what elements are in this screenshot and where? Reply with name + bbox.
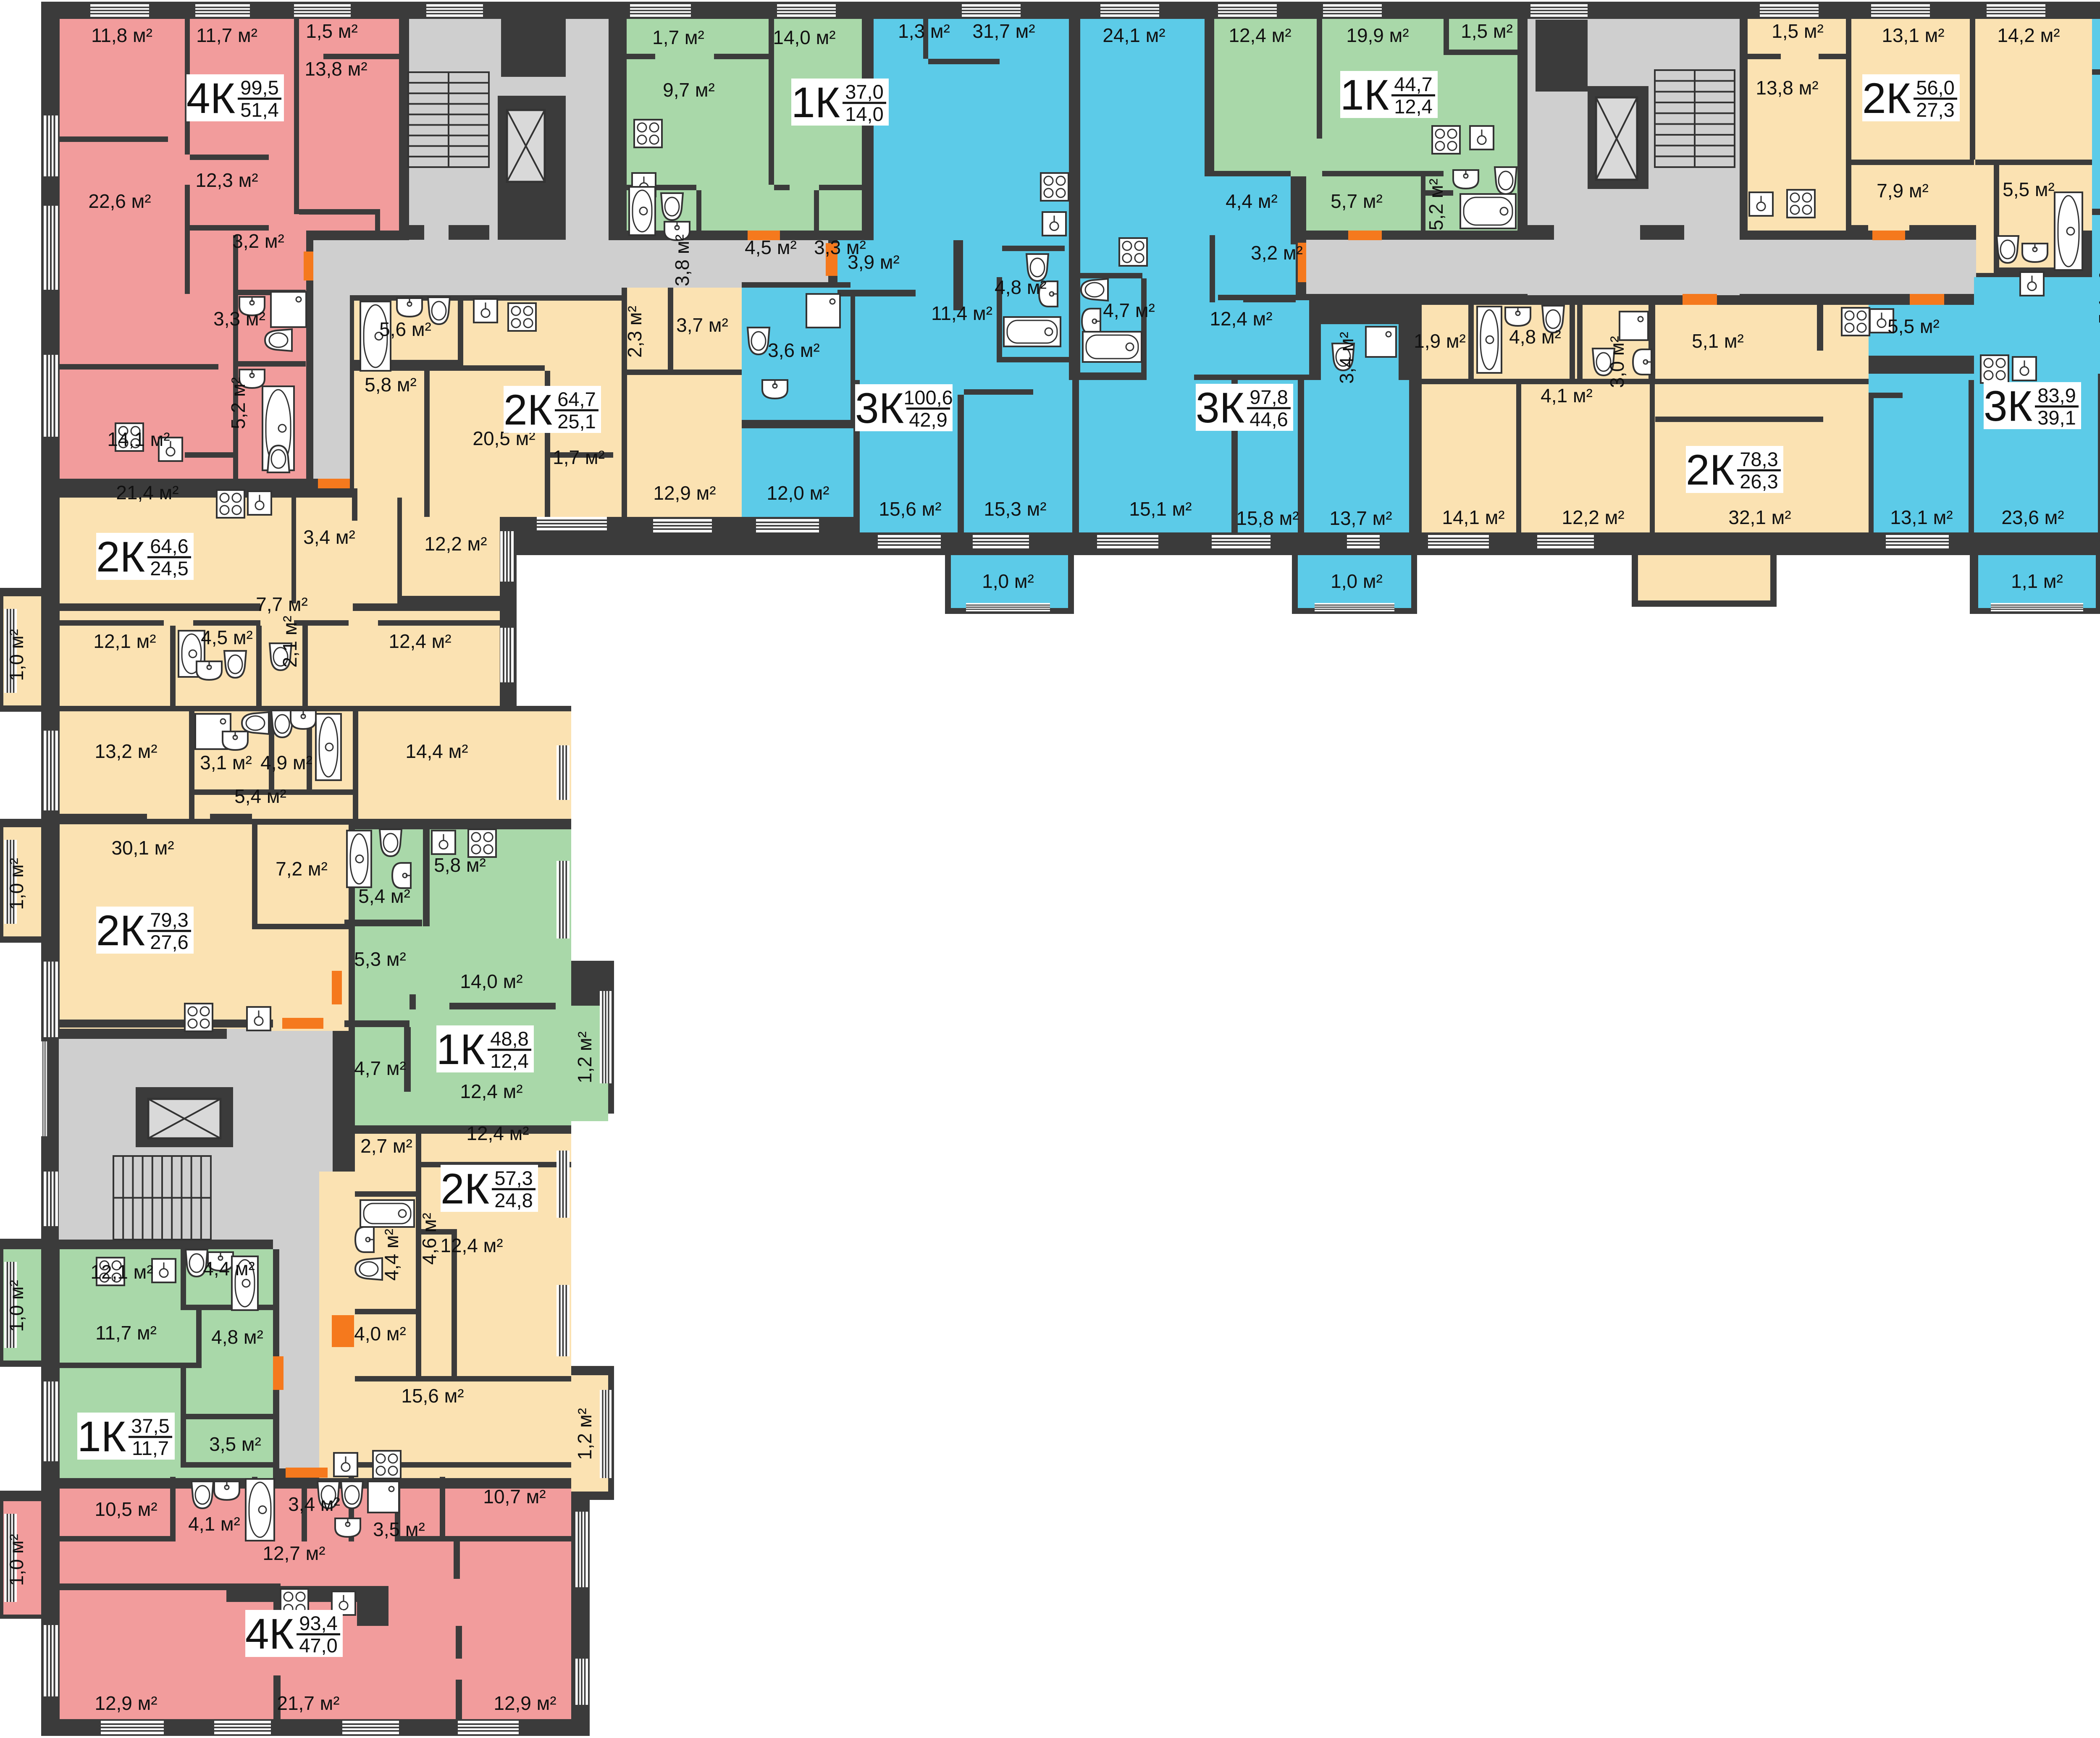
- svg-text:64,6: 64,6: [150, 535, 188, 557]
- svg-text:12,4 м²: 12,4 м²: [388, 630, 451, 652]
- svg-text:3,7 м²: 3,7 м²: [676, 314, 728, 336]
- svg-text:12,4 м²: 12,4 м²: [460, 1080, 522, 1102]
- svg-text:3К: 3К: [1196, 384, 1244, 432]
- svg-text:1,9 м²: 1,9 м²: [1414, 330, 1466, 352]
- svg-text:1,0 м²: 1,0 м²: [5, 1534, 27, 1586]
- svg-text:2К: 2К: [96, 907, 145, 954]
- svg-text:3,8 м²: 3,8 м²: [671, 234, 693, 286]
- svg-text:14,1 м²: 14,1 м²: [1442, 506, 1504, 528]
- svg-text:3,4 м²: 3,4 м²: [1336, 332, 1357, 384]
- svg-text:1,7 м²: 1,7 м²: [553, 446, 605, 468]
- svg-text:5,4 м²: 5,4 м²: [234, 785, 286, 807]
- svg-text:14,1 м²: 14,1 м²: [107, 428, 170, 450]
- svg-text:1,0 м²: 1,0 м²: [5, 1280, 27, 1332]
- svg-text:5,8 м²: 5,8 м²: [365, 374, 417, 396]
- svg-text:1,5 м²: 1,5 м²: [1461, 20, 1513, 42]
- svg-text:11,7 м²: 11,7 м²: [196, 24, 257, 46]
- svg-text:99,5: 99,5: [240, 76, 278, 99]
- svg-text:4К: 4К: [186, 74, 235, 122]
- svg-text:37,0: 37,0: [845, 81, 883, 103]
- svg-text:2К: 2К: [1686, 446, 1735, 494]
- svg-text:3,2 м²: 3,2 м²: [232, 230, 284, 252]
- svg-text:3,4 м²: 3,4 м²: [303, 526, 355, 548]
- svg-text:27,3: 27,3: [1916, 99, 1954, 121]
- svg-text:4К: 4К: [245, 1610, 294, 1658]
- svg-text:4,7 м²: 4,7 м²: [1103, 299, 1155, 321]
- svg-text:79,3: 79,3: [150, 909, 188, 931]
- svg-text:24,1 м²: 24,1 м²: [1102, 24, 1165, 46]
- svg-text:4,1 м²: 4,1 м²: [188, 1513, 240, 1535]
- svg-text:5,6 м²: 5,6 м²: [379, 318, 431, 340]
- svg-text:15,8 м²: 15,8 м²: [1236, 507, 1299, 529]
- svg-text:15,6 м²: 15,6 м²: [879, 498, 941, 520]
- svg-text:12,1 м²: 12,1 м²: [93, 630, 156, 652]
- svg-text:12,4 м²: 12,4 м²: [1210, 308, 1272, 330]
- svg-text:2,3 м²: 2,3 м²: [624, 306, 646, 358]
- svg-text:12,0 м²: 12,0 м²: [766, 482, 829, 504]
- svg-text:4,8 м²: 4,8 м²: [1509, 326, 1561, 348]
- svg-text:12,1 м²: 12,1 м²: [90, 1261, 153, 1283]
- svg-text:93,4: 93,4: [299, 1612, 337, 1634]
- svg-text:1К: 1К: [1340, 71, 1389, 119]
- svg-text:12,7 м²: 12,7 м²: [262, 1542, 325, 1564]
- svg-text:11,7 м²: 11,7 м²: [95, 1322, 157, 1344]
- svg-text:3,3 м²: 3,3 м²: [213, 308, 265, 330]
- svg-text:2К: 2К: [96, 533, 145, 581]
- svg-text:7,7 м²: 7,7 м²: [256, 593, 308, 615]
- svg-text:5,2 м²: 5,2 м²: [1425, 178, 1447, 231]
- svg-text:1,0 м²: 1,0 м²: [5, 629, 27, 681]
- svg-text:5,4 м²: 5,4 м²: [358, 885, 410, 907]
- svg-text:12,4: 12,4: [490, 1050, 528, 1072]
- svg-text:64,7: 64,7: [557, 388, 596, 410]
- svg-text:5,7 м²: 5,7 м²: [1331, 190, 1383, 212]
- svg-text:4,8 м²: 4,8 м²: [211, 1326, 263, 1348]
- svg-text:12,9 м²: 12,9 м²: [653, 482, 716, 504]
- svg-text:5,3 м²: 5,3 м²: [354, 948, 406, 970]
- svg-text:2К: 2К: [1862, 74, 1911, 122]
- svg-text:7,2 м²: 7,2 м²: [276, 858, 328, 880]
- svg-text:32,1 м²: 32,1 м²: [1728, 506, 1791, 528]
- svg-text:22,6 м²: 22,6 м²: [88, 190, 151, 212]
- svg-text:27,6: 27,6: [150, 931, 188, 953]
- svg-text:2К: 2К: [504, 386, 552, 434]
- svg-text:3,5 м²: 3,5 м²: [209, 1433, 261, 1455]
- svg-text:10,7 м²: 10,7 м²: [483, 1486, 546, 1507]
- svg-text:12,9 м²: 12,9 м²: [94, 1692, 157, 1714]
- svg-text:21,7 м²: 21,7 м²: [277, 1692, 339, 1714]
- svg-text:4,6 м²: 4,6 м²: [418, 1213, 440, 1265]
- svg-text:14,0: 14,0: [845, 103, 883, 125]
- svg-text:9,7 м²: 9,7 м²: [663, 79, 715, 101]
- svg-text:12,4 м²: 12,4 м²: [466, 1122, 529, 1144]
- svg-text:1,3 м²: 1,3 м²: [898, 20, 950, 42]
- svg-text:31,7 м²: 31,7 м²: [972, 20, 1035, 42]
- svg-text:1К: 1К: [791, 79, 840, 126]
- svg-text:3К: 3К: [1984, 382, 2032, 430]
- svg-text:14,2 м²: 14,2 м²: [1997, 24, 2060, 46]
- svg-text:24,5: 24,5: [150, 557, 188, 579]
- svg-text:3К: 3К: [855, 384, 904, 432]
- svg-text:39,1: 39,1: [2037, 406, 2076, 429]
- svg-text:47,0: 47,0: [299, 1634, 337, 1657]
- svg-text:51,4: 51,4: [240, 99, 278, 121]
- svg-text:5,1 м²: 5,1 м²: [2095, 272, 2100, 324]
- svg-text:3,4 м²: 3,4 м²: [288, 1493, 340, 1515]
- svg-text:100,6: 100,6: [903, 386, 953, 409]
- svg-text:14,0 м²: 14,0 м²: [773, 26, 835, 48]
- svg-text:5,5 м²: 5,5 м²: [1887, 315, 1940, 337]
- svg-text:4,5 м²: 4,5 м²: [745, 236, 797, 258]
- svg-text:30,1 м²: 30,1 м²: [111, 837, 174, 859]
- svg-text:1,1 м²: 1,1 м²: [2011, 570, 2063, 592]
- svg-text:1К: 1К: [77, 1413, 126, 1460]
- svg-text:48,8: 48,8: [490, 1028, 528, 1050]
- svg-text:13,1 м²: 13,1 м²: [1890, 506, 1953, 528]
- svg-text:44,6: 44,6: [1249, 408, 1288, 430]
- svg-text:19,9 м²: 19,9 м²: [1346, 24, 1409, 46]
- svg-text:4,5 м²: 4,5 м²: [201, 627, 253, 648]
- svg-text:15,1 м²: 15,1 м²: [1129, 498, 1192, 520]
- svg-text:3,0 м²: 3,0 м²: [1606, 336, 1628, 388]
- svg-text:4,4 м²: 4,4 м²: [1226, 190, 1278, 212]
- svg-text:12,3 м²: 12,3 м²: [195, 169, 258, 191]
- svg-text:13,1 м²: 13,1 м²: [1882, 24, 1944, 46]
- svg-text:4,8 м²: 4,8 м²: [995, 276, 1047, 298]
- svg-text:26,3: 26,3: [1740, 470, 1778, 493]
- svg-text:12,4: 12,4: [1394, 95, 1432, 118]
- svg-text:4,7 м²: 4,7 м²: [354, 1057, 406, 1079]
- svg-text:4,4 м²: 4,4 м²: [381, 1229, 402, 1281]
- svg-text:4,1 м²: 4,1 м²: [1541, 385, 1593, 406]
- svg-text:21,4 м²: 21,4 м²: [116, 482, 178, 503]
- svg-text:97,8: 97,8: [1249, 386, 1288, 408]
- svg-text:12,4 м²: 12,4 м²: [440, 1235, 503, 1256]
- svg-text:3,5 м²: 3,5 м²: [373, 1518, 425, 1540]
- svg-text:1,0 м²: 1,0 м²: [1331, 570, 1383, 592]
- svg-text:15,6 м²: 15,6 м²: [401, 1385, 464, 1407]
- svg-text:1,2 м²: 1,2 м²: [574, 1031, 596, 1083]
- svg-text:1,2 м²: 1,2 м²: [574, 1408, 596, 1460]
- svg-text:10,5 м²: 10,5 м²: [94, 1498, 157, 1520]
- svg-text:11,4 м²: 11,4 м²: [931, 302, 992, 324]
- svg-text:12,9 м²: 12,9 м²: [493, 1692, 556, 1714]
- svg-text:3,6 м²: 3,6 м²: [768, 339, 820, 361]
- svg-text:2К: 2К: [441, 1165, 489, 1213]
- svg-text:5,8 м²: 5,8 м²: [434, 854, 486, 876]
- svg-text:5,5 м²: 5,5 м²: [2003, 178, 2055, 200]
- svg-text:13,8 м²: 13,8 м²: [304, 58, 367, 80]
- svg-text:1К: 1К: [436, 1025, 485, 1073]
- svg-text:1,7 м²: 1,7 м²: [652, 26, 704, 48]
- svg-text:4,0 м²: 4,0 м²: [354, 1323, 406, 1345]
- svg-text:3,2 м²: 3,2 м²: [1251, 242, 1303, 264]
- svg-text:13,8 м²: 13,8 м²: [1756, 77, 1818, 99]
- svg-text:11,8 м²: 11,8 м²: [91, 24, 152, 46]
- svg-text:1,0 м²: 1,0 м²: [5, 858, 27, 910]
- svg-text:14,0 м²: 14,0 м²: [460, 970, 522, 992]
- svg-text:78,3: 78,3: [1740, 448, 1778, 470]
- svg-text:12,4 м²: 12,4 м²: [1228, 24, 1291, 46]
- svg-text:12,2 м²: 12,2 м²: [1562, 506, 1624, 528]
- svg-text:1,5 м²: 1,5 м²: [1772, 20, 1824, 42]
- svg-text:5,1 м²: 5,1 м²: [1692, 330, 1744, 352]
- svg-text:3,1 м²: 3,1 м²: [200, 752, 252, 773]
- svg-text:24,8: 24,8: [494, 1189, 533, 1211]
- svg-text:23,6 м²: 23,6 м²: [2001, 506, 2064, 528]
- svg-text:25,1: 25,1: [557, 410, 596, 433]
- svg-text:56,0: 56,0: [1916, 76, 1954, 99]
- svg-text:12,2 м²: 12,2 м²: [424, 533, 487, 555]
- svg-text:13,2 м²: 13,2 м²: [94, 740, 157, 762]
- svg-text:37,5: 37,5: [131, 1415, 169, 1437]
- svg-text:1,0 м²: 1,0 м²: [982, 570, 1034, 592]
- svg-text:15,3 м²: 15,3 м²: [984, 498, 1046, 520]
- svg-text:5,2 м²: 5,2 м²: [227, 377, 249, 429]
- svg-text:4,4 м²: 4,4 м²: [203, 1258, 255, 1279]
- svg-text:7,9 м²: 7,9 м²: [1877, 180, 1929, 202]
- svg-text:42,9: 42,9: [909, 409, 947, 431]
- svg-text:83,9: 83,9: [2037, 384, 2076, 406]
- svg-text:3,9 м²: 3,9 м²: [848, 251, 900, 273]
- svg-text:57,3: 57,3: [494, 1167, 533, 1189]
- svg-text:2,1 м²: 2,1 м²: [279, 616, 301, 668]
- svg-text:13,7 м²: 13,7 м²: [1329, 507, 1392, 529]
- svg-text:11,7: 11,7: [132, 1437, 169, 1459]
- svg-text:44,7: 44,7: [1394, 73, 1432, 95]
- svg-text:14,4 м²: 14,4 м²: [405, 740, 468, 762]
- svg-text:1,5 м²: 1,5 м²: [306, 20, 358, 42]
- svg-text:4,9 м²: 4,9 м²: [260, 752, 312, 773]
- svg-text:2,7 м²: 2,7 м²: [360, 1135, 412, 1157]
